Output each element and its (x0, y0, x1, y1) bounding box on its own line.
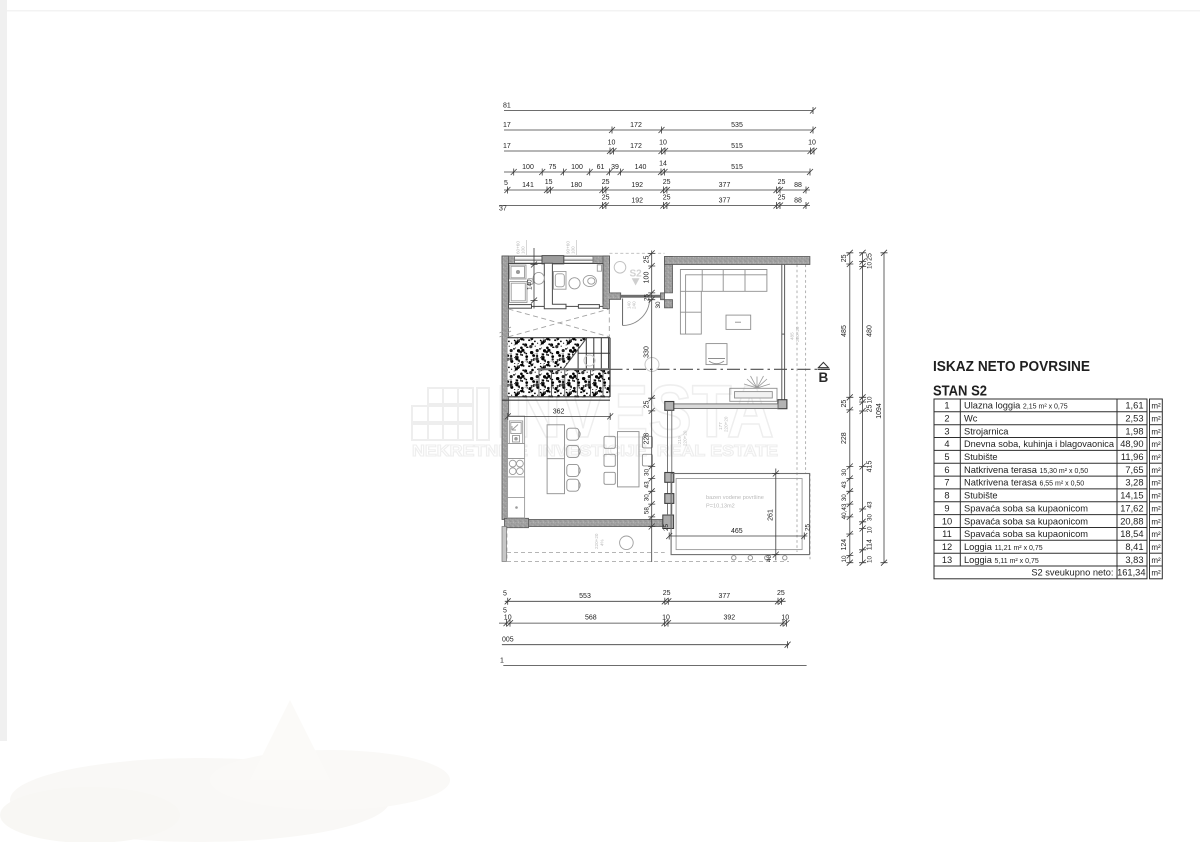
svg-text:515: 515 (731, 164, 743, 171)
svg-text:10: 10 (867, 526, 874, 534)
svg-text:58: 58 (644, 507, 651, 515)
svg-text:m²: m² (1151, 415, 1161, 424)
svg-text:43: 43 (644, 481, 651, 489)
svg-text:3,28: 3,28 (1125, 478, 1143, 488)
svg-text:228: 228 (841, 432, 848, 444)
svg-text:10: 10 (841, 555, 848, 563)
svg-text:5: 5 (504, 180, 508, 187)
svg-text:25: 25 (663, 523, 670, 531)
svg-text:177: 177 (718, 422, 723, 430)
svg-text:m²: m² (1151, 517, 1161, 526)
svg-text:88: 88 (794, 198, 802, 205)
svg-text:3,83: 3,83 (1125, 555, 1143, 565)
svg-text:bazen vodene površine: bazen vodene površine (706, 495, 764, 501)
svg-text:25: 25 (805, 523, 812, 531)
svg-text:4%: 4% (600, 539, 605, 546)
svg-text:553: 553 (579, 593, 591, 600)
svg-text:7,65: 7,65 (1125, 465, 1143, 475)
svg-text:3: 3 (944, 426, 949, 436)
svg-text:005: 005 (502, 637, 514, 644)
svg-text:11,96: 11,96 (1121, 452, 1144, 462)
svg-text:485: 485 (790, 332, 795, 340)
svg-text:17,62: 17,62 (1120, 503, 1143, 513)
svg-text:10: 10 (867, 556, 874, 564)
svg-text:515: 515 (731, 143, 743, 150)
svg-text:392: 392 (723, 615, 735, 622)
svg-text:100: 100 (571, 164, 583, 171)
svg-text:240: 240 (632, 301, 637, 309)
svg-text:8,41: 8,41 (1125, 542, 1143, 552)
svg-text:25: 25 (841, 400, 848, 408)
svg-text:124: 124 (841, 539, 848, 551)
svg-text:485: 485 (841, 325, 848, 337)
svg-text:25: 25 (663, 179, 671, 186)
svg-text:12: 12 (942, 542, 952, 552)
svg-text:Dnevna soba, kuhinja i blagova: Dnevna soba, kuhinja i blagovaonica (964, 439, 1115, 449)
svg-text:75: 75 (549, 164, 557, 171)
svg-text:37: 37 (499, 206, 507, 213)
svg-text:10: 10 (608, 140, 616, 147)
svg-text:25: 25 (778, 195, 786, 202)
svg-text:S2: S2 (630, 269, 643, 280)
svg-text:180: 180 (570, 182, 582, 189)
svg-text:25: 25 (644, 256, 651, 264)
svg-text:140: 140 (527, 279, 534, 290)
svg-text:10: 10 (781, 615, 789, 622)
svg-text:10: 10 (662, 615, 670, 622)
svg-text:10: 10 (659, 140, 667, 147)
svg-text:P=10,13m2: P=10,13m2 (706, 504, 735, 510)
svg-text:1,61: 1,61 (1125, 401, 1143, 411)
svg-text:1,98: 1,98 (1125, 426, 1143, 436)
svg-text:100: 100 (522, 164, 534, 171)
svg-text:Spavaća soba sa kupaonicom: Spavaća soba sa kupaonicom (964, 529, 1088, 539)
svg-text:18,54: 18,54 (1120, 529, 1143, 539)
svg-text:48,90: 48,90 (1120, 439, 1143, 449)
svg-text:5: 5 (944, 452, 949, 462)
svg-text:15: 15 (545, 179, 553, 186)
svg-text:377: 377 (719, 182, 731, 189)
svg-text:40: 40 (766, 554, 773, 562)
svg-text:11: 11 (942, 529, 952, 539)
svg-text:43: 43 (841, 481, 848, 489)
svg-text:10: 10 (504, 615, 512, 622)
svg-text:261: 261 (768, 509, 775, 521)
svg-text:25: 25 (644, 401, 651, 409)
svg-text:141: 141 (522, 182, 534, 189)
svg-text:39: 39 (611, 164, 619, 171)
svg-text:S2 sveukupno neto:: S2 sveukupno neto: (1031, 568, 1113, 578)
svg-text:10: 10 (867, 396, 874, 404)
svg-text:m²: m² (1151, 543, 1161, 552)
svg-text:6: 6 (944, 465, 949, 475)
svg-text:25: 25 (841, 254, 848, 262)
svg-text:5: 5 (503, 591, 507, 598)
svg-text:61: 61 (597, 164, 605, 171)
svg-text:30: 30 (841, 494, 848, 502)
svg-text:10: 10 (867, 262, 874, 270)
svg-text:220+20: 220+20 (683, 430, 688, 446)
svg-text:Spavaća soba sa kupaonicom: Spavaća soba sa kupaonicom (964, 503, 1088, 513)
svg-text:25: 25 (867, 405, 874, 413)
svg-text:B: B (819, 370, 829, 385)
svg-text:140: 140 (635, 164, 647, 171)
svg-text:14,15: 14,15 (1120, 491, 1143, 501)
svg-text:25: 25 (867, 253, 874, 261)
svg-text:220+20: 220+20 (724, 416, 729, 432)
svg-text:10: 10 (942, 516, 952, 526)
svg-text:25: 25 (602, 179, 610, 186)
svg-text:25: 25 (602, 195, 610, 202)
svg-text:NEKRETNINE INVESTICIJE REAL: NEKRETNINE INVESTICIJE REAL ESTATE (412, 443, 778, 460)
svg-text:1: 1 (944, 401, 949, 411)
svg-text:100: 100 (521, 246, 526, 254)
svg-text:9: 9 (944, 503, 949, 513)
svg-text:480: 480 (867, 325, 874, 337)
svg-text:330: 330 (644, 346, 651, 358)
svg-text:30: 30 (867, 514, 874, 522)
svg-text:8: 8 (944, 491, 949, 501)
svg-text:Wc: Wc (964, 414, 978, 424)
svg-text:17: 17 (503, 122, 511, 129)
svg-text:30: 30 (655, 301, 662, 309)
svg-text:377: 377 (719, 198, 731, 205)
svg-text:13: 13 (942, 555, 952, 565)
svg-text:Stubište: Stubište (964, 491, 998, 501)
svg-text:100: 100 (644, 272, 651, 284)
svg-text:Stubište: Stubište (964, 452, 998, 462)
svg-text:m²: m² (1151, 453, 1161, 462)
svg-text:m²: m² (1151, 466, 1161, 475)
svg-text:10: 10 (808, 140, 816, 147)
svg-text:30: 30 (644, 494, 651, 502)
svg-text:4: 4 (944, 439, 949, 449)
svg-text:17: 17 (503, 143, 511, 150)
svg-text:161,34: 161,34 (1117, 568, 1145, 578)
svg-text:m²: m² (1151, 427, 1161, 436)
svg-text:43: 43 (867, 501, 874, 509)
svg-text:m²: m² (1151, 492, 1161, 501)
svg-text:100: 100 (571, 246, 576, 254)
svg-text:25: 25 (777, 590, 785, 597)
svg-text:88: 88 (794, 182, 802, 189)
svg-text:415: 415 (867, 461, 874, 473)
svg-text:219: 219 (677, 436, 682, 444)
svg-text:90+60: 90+60 (566, 241, 571, 254)
svg-text:Spavaća soba sa kupaonicom: Spavaća soba sa kupaonicom (964, 516, 1088, 526)
svg-text:192: 192 (631, 182, 643, 189)
svg-text:25: 25 (663, 590, 671, 597)
svg-text:m²: m² (1151, 504, 1161, 513)
svg-text:535: 535 (731, 122, 743, 129)
svg-text:m²: m² (1151, 402, 1161, 411)
svg-text:362: 362 (553, 408, 565, 415)
svg-text:2: 2 (944, 414, 949, 424)
svg-text:m²: m² (1151, 440, 1161, 449)
svg-text:465: 465 (731, 528, 743, 535)
svg-text:m²: m² (1151, 556, 1161, 565)
svg-text:192: 192 (631, 198, 643, 205)
svg-text:40,43: 40,43 (841, 503, 848, 519)
svg-text:1094: 1094 (876, 403, 883, 419)
svg-text:25: 25 (663, 195, 671, 202)
svg-text:20,88: 20,88 (1120, 516, 1143, 526)
svg-text:25: 25 (644, 294, 651, 302)
svg-text:60+60: 60+60 (516, 241, 521, 254)
svg-text:81: 81 (503, 103, 511, 110)
svg-text:172: 172 (630, 122, 642, 129)
svg-text:220+20: 220+20 (795, 326, 800, 342)
svg-text:220+20: 220+20 (594, 533, 599, 549)
svg-text:Strojarnica: Strojarnica (964, 426, 1009, 436)
svg-text:m²: m² (1151, 569, 1161, 578)
svg-text:30: 30 (841, 469, 848, 477)
svg-text:7: 7 (944, 478, 949, 488)
svg-text:ISKAZ NETO POVRSINE: ISKAZ NETO POVRSINE (933, 359, 1090, 375)
svg-text:114: 114 (867, 539, 874, 550)
svg-text:172: 172 (630, 143, 642, 150)
svg-text:2,53: 2,53 (1125, 414, 1143, 424)
svg-text:30: 30 (644, 469, 651, 477)
svg-text:25: 25 (778, 179, 786, 186)
svg-text:1: 1 (500, 658, 504, 665)
svg-text:m²: m² (1151, 530, 1161, 539)
svg-text:568: 568 (585, 615, 597, 622)
svg-text:m²: m² (1151, 479, 1161, 488)
svg-text:14: 14 (659, 161, 667, 168)
svg-text:5: 5 (503, 608, 507, 615)
svg-text:228: 228 (644, 433, 651, 445)
svg-text:377: 377 (718, 593, 730, 600)
svg-text:STAN S2: STAN S2 (933, 384, 987, 400)
